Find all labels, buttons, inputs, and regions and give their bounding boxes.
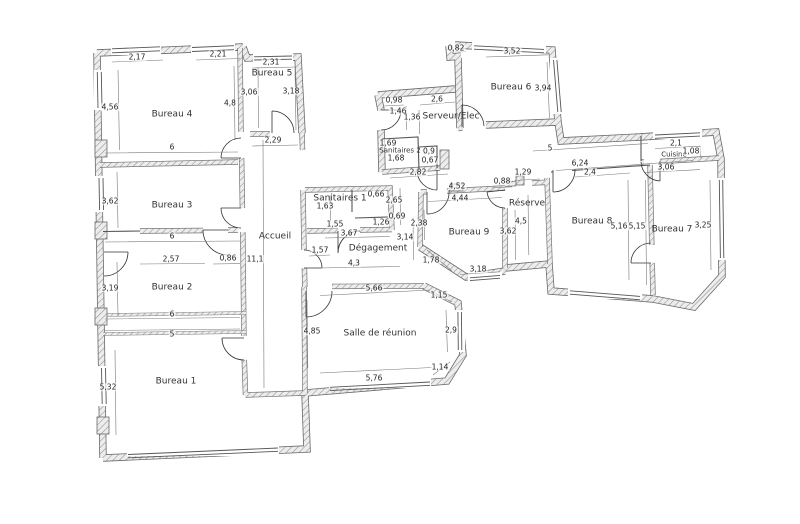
dimension-label: 6 (169, 310, 176, 318)
dimension-label: 1,36 (403, 113, 422, 121)
dimension-label: 4,3 (347, 259, 361, 267)
room-label: Bureau 2 (152, 284, 193, 293)
dimension-label: 3,06 (240, 88, 259, 96)
room-label: Bureau 9 (449, 229, 490, 238)
dimension-label: 6 (169, 232, 176, 240)
room-label: Serveur/Elec (423, 113, 480, 122)
room-label: Bureau 5 (252, 70, 293, 79)
floorplan: Bureau 4Bureau 5Bureau 3Bureau 2Bureau 1… (0, 0, 800, 524)
window (95, 176, 105, 212)
dimension-label: 4,8 (223, 99, 237, 107)
dimension-label: 0,69 (388, 212, 407, 220)
dimension-label: 1,78 (422, 256, 441, 264)
dimension-label: 2,21 (209, 50, 228, 58)
dimension-label: 2,17 (128, 53, 147, 61)
dimension-label: 5,16 (610, 222, 629, 230)
walls-layer (95, 45, 722, 458)
dimension-label: 2,29 (264, 136, 283, 144)
dimension-label: 2,31 (262, 58, 281, 66)
dimension-label: 1,14 (431, 363, 450, 371)
dimension-label: 0,82 (447, 44, 466, 52)
dimension-label: 11,1 (246, 255, 265, 263)
dimension-label: 0,88 (493, 177, 512, 185)
dimension-label: 3,14 (396, 233, 415, 241)
dimension-label: 2,9 (444, 326, 458, 334)
room-label: Bureau 1 (156, 378, 197, 387)
dimension-label: 3,94 (534, 84, 553, 92)
dimension-label: 6 (169, 143, 176, 151)
dimension-label: 4,85 (303, 327, 322, 335)
room-label: Bureau 8 (572, 218, 613, 227)
room-label: Accueil (259, 233, 291, 242)
dimension-label: 5,15 (628, 222, 647, 230)
dimension-label: 1,08 (682, 147, 701, 155)
dimension-label: 2,4 (583, 168, 597, 176)
dimension-label: 4,56 (101, 103, 120, 111)
room-label: Bureau 4 (152, 111, 193, 120)
room-label: Dégagement (349, 245, 407, 254)
dimension-label: 5,66 (365, 284, 384, 292)
dimension-label: 4,5 (514, 217, 528, 225)
dimension-label: 1,57 (311, 246, 330, 254)
dimension-label: 3,06 (657, 163, 676, 171)
dimension-label: 5 (547, 144, 554, 152)
room-label: Bureau 3 (152, 202, 193, 211)
room-label: Réserve (509, 200, 545, 209)
dimension-label: 0,86 (219, 254, 238, 262)
room-label: Bureau 6 (491, 84, 532, 93)
dimension-label: 2,38 (410, 219, 429, 227)
dimension-label: 6,24 (571, 159, 590, 167)
dimension-label: 5,32 (99, 383, 118, 391)
dimension-label: 1,63 (316, 202, 335, 210)
dimension-label: 2,6 (430, 95, 444, 103)
dimension-label: 2,82 (409, 168, 428, 176)
dimension-label: 1,69 (379, 139, 398, 147)
dimension-label: 0,98 (385, 96, 404, 104)
dimension-label: 0,67 (421, 156, 440, 164)
dimension-label: 3,62 (101, 197, 120, 205)
dimension-label: 3,18 (282, 87, 301, 95)
dimension-label: 3,25 (694, 221, 713, 229)
window (568, 288, 642, 300)
dimension-label: 1,68 (387, 154, 406, 162)
dimension-label: 2,65 (385, 196, 404, 204)
dimension-label: 1,55 (326, 220, 345, 228)
dimension-label: 0,9 (422, 147, 436, 155)
dimension-label: 1,29 (514, 168, 533, 176)
dimension-label: 1,26 (372, 218, 391, 226)
dimension-label: 2,57 (162, 255, 181, 263)
dimension-label: 1,15 (430, 291, 449, 299)
windows-layer (94, 42, 726, 458)
dimension-label: 3,19 (101, 284, 120, 292)
dimension-label: 4,52 (448, 182, 467, 190)
dimension-label: 3,62 (499, 227, 518, 235)
room-label: Bureau 7 (652, 226, 693, 235)
dimension-label: 5 (169, 330, 176, 338)
floorplan-drawing (0, 0, 800, 524)
dimension-label: 4,44 (451, 194, 470, 202)
window (716, 178, 726, 260)
dimension-label: 3,67 (340, 229, 359, 237)
dimension-label: 2,1 (669, 139, 683, 147)
room-label: Salle de réunion (344, 330, 417, 339)
dimension-label: 3,52 (503, 47, 522, 55)
dimension-label: 3,18 (469, 265, 488, 273)
dimension-label: 0,66 (367, 190, 386, 198)
dimension-label: 5,76 (365, 374, 384, 382)
